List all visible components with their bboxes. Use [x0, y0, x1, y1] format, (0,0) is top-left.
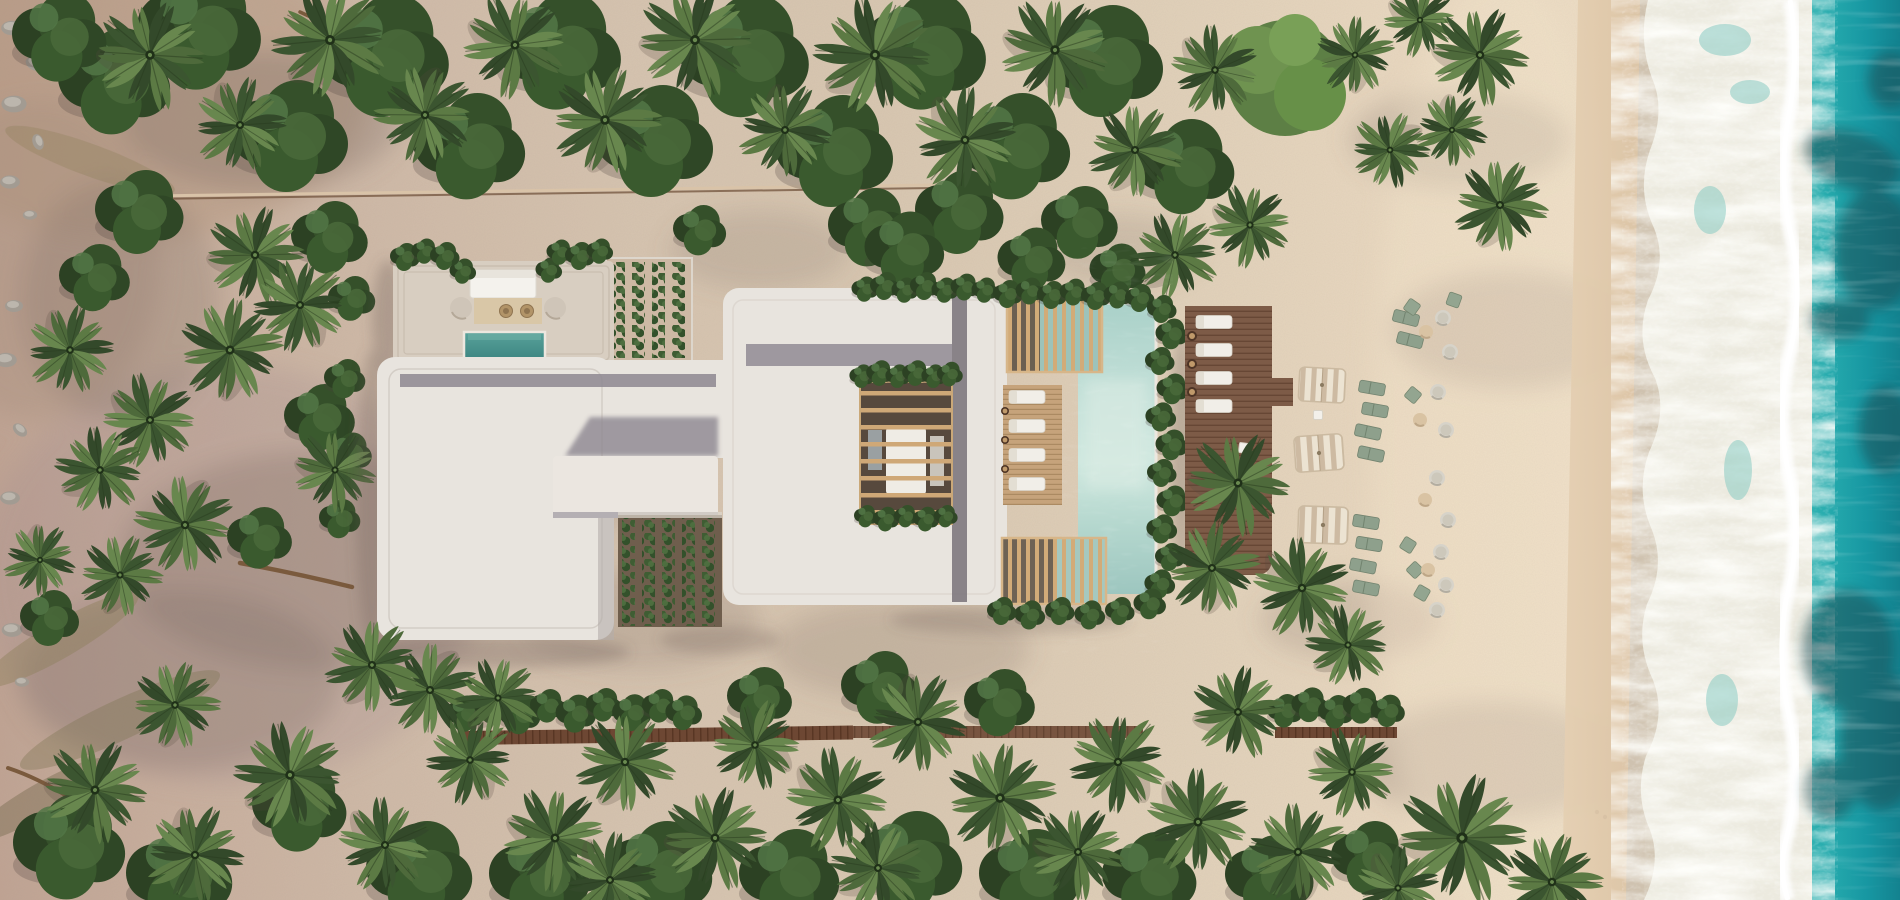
beach-parasol [1298, 367, 1346, 403]
roof-edge-band [952, 292, 967, 602]
vine-atrium [618, 512, 722, 627]
pool-courtyard [1001, 290, 1157, 604]
deck-lounger [1196, 316, 1232, 329]
ocean-layer [1562, 0, 1900, 900]
pergola-south [1002, 538, 1106, 604]
beach-service-table [1314, 411, 1323, 420]
pool-lounger [1009, 391, 1045, 404]
trellis-garden [606, 258, 692, 362]
aerial-scene: Aerial drone render of a beachfront vill… [0, 0, 1900, 900]
ocean-foam-wisps [1786, 0, 1900, 900]
roof-skylight-band [400, 374, 716, 387]
pergola-courtyard [860, 382, 952, 524]
